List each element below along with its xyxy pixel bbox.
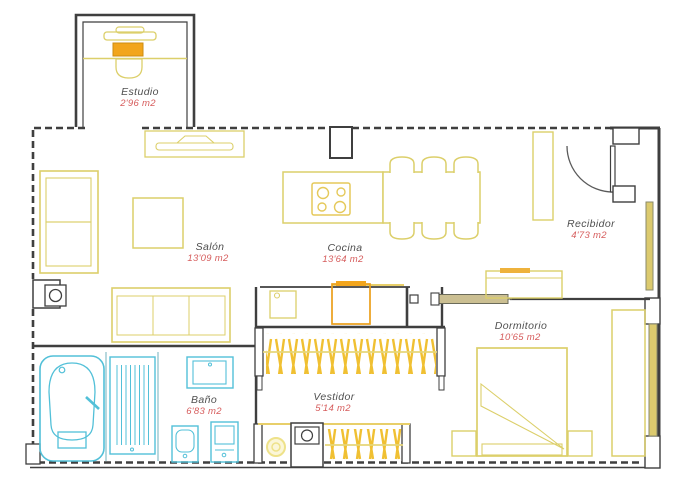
room-area: 13'64 m2: [322, 254, 364, 265]
room-estudio: [83, 27, 187, 78]
nightstand-right: [568, 431, 592, 456]
bidet-tap: [222, 453, 226, 457]
room-label-cocina: Cocina 13'64 m2: [322, 242, 364, 265]
kitchen-sink: [270, 291, 296, 318]
dining-chair: [422, 157, 446, 173]
room-name: Vestidor: [313, 391, 354, 403]
stove-burner: [318, 203, 326, 211]
bed: [477, 348, 567, 456]
sofa-side-cushion: [46, 222, 91, 266]
stove-burner: [335, 202, 346, 213]
room-area: 4'73 m2: [571, 230, 607, 241]
dining-chair: [454, 222, 478, 239]
kitchen-faucet: [275, 293, 280, 298]
room-name: Estudio: [121, 86, 159, 98]
entry-door-leaf: [611, 146, 616, 192]
stove-burner: [318, 188, 329, 199]
room-area: 10'65 m2: [499, 332, 541, 343]
pillar-top: [330, 127, 352, 158]
bed-footboard: [482, 444, 562, 455]
floor-plan-image: Estudio 2'96 m2 Salón 13'09 m2 Cocina 13…: [0, 0, 700, 500]
entry-jamb-bottom: [613, 186, 635, 202]
room-label-estudio: Estudio 2'96 m2: [119, 86, 159, 109]
stove-burner: [337, 188, 345, 196]
sideboard: [486, 271, 562, 298]
bathtub-drain: [59, 367, 65, 373]
dining-chair: [390, 157, 414, 173]
wall-pier-right-upper: [645, 298, 660, 324]
fridge-top: [336, 281, 366, 286]
dining-chair: [390, 222, 414, 239]
dining-chair: [422, 222, 446, 239]
closet2-end-wall-left: [254, 424, 262, 463]
bathtub-basin: [49, 363, 95, 440]
washbasin-bowl: [193, 361, 226, 384]
room-name: Baño: [191, 394, 217, 406]
room-name: Salón: [196, 241, 225, 253]
bidet-bowl: [215, 426, 234, 444]
window-right: [649, 324, 657, 436]
wall-notch: [410, 295, 418, 303]
room-area: 6'83 m2: [186, 406, 222, 417]
sliding-door-panel: [436, 295, 508, 304]
closet2-end-wall-right: [402, 424, 410, 463]
washbasin-tap: [209, 363, 212, 366]
sofa-main-seat: [117, 296, 225, 335]
room-area: 2'96 m2: [119, 98, 156, 109]
desk-chair: [116, 59, 142, 78]
floor-plan: Estudio 2'96 m2 Salón 13'09 m2 Cocina 13…: [0, 0, 700, 500]
toilet-flush: [183, 454, 187, 458]
room-name: Cocina: [327, 242, 362, 254]
room-name: Recibidor: [567, 218, 615, 230]
room-salon: [40, 131, 244, 342]
dining-table: [383, 172, 480, 223]
closet-post-right: [439, 376, 444, 390]
room-name: Dormitorio: [495, 320, 547, 332]
wall-step-bottom-left: [26, 444, 40, 464]
entry-door-swing-arc: [567, 146, 613, 192]
tv-icon: [177, 136, 214, 143]
shower-drain: [131, 448, 134, 451]
room-label-recibidor: Recibidor 4'73 m2: [567, 218, 615, 241]
water-heater: [45, 285, 66, 306]
hall-closet-strip: [646, 202, 653, 290]
sofa-cushion-dividers: [153, 296, 189, 335]
bed-fold: [481, 384, 564, 449]
tv-screen: [156, 143, 233, 150]
toilet-bowl: [176, 430, 194, 452]
entry-jamb-top: [613, 128, 639, 144]
nightstand-left: [452, 431, 476, 456]
dining-chair: [454, 157, 478, 173]
sofa-side-cushion: [46, 178, 91, 222]
wall-pier-right-lower: [645, 436, 660, 468]
shower-tray-grooves: [117, 365, 149, 445]
closet-end-wall-right: [437, 328, 445, 376]
room-label-dormitorio: Dormitorio 10'65 m2: [495, 320, 547, 343]
coffee-table: [133, 198, 183, 248]
laundry-basket: [267, 438, 285, 456]
room-area: 5'14 m2: [315, 403, 351, 414]
room-area: 13'09 m2: [187, 253, 229, 264]
tv-unit: [145, 131, 244, 157]
room-recibidor: [486, 132, 562, 298]
desk-monitor: [113, 43, 143, 56]
fridge: [332, 284, 370, 324]
sideboard-accent: [500, 268, 530, 273]
sliding-door-handle: [431, 293, 439, 305]
bathtub-handle: [86, 397, 99, 409]
closet-rail-hangers-top: [266, 333, 436, 374]
hall-cabinet: [533, 132, 553, 220]
room-label-salon: Salón 13'09 m2: [187, 241, 229, 264]
closet-end-wall-left: [255, 328, 263, 376]
room-dormitorio: [452, 310, 645, 456]
closet-post-left: [257, 376, 262, 390]
room-label-bano: Baño 6'83 m2: [186, 394, 222, 417]
room-label-vestidor: Vestidor 5'14 m2: [313, 391, 354, 414]
wardrobe: [612, 310, 645, 456]
